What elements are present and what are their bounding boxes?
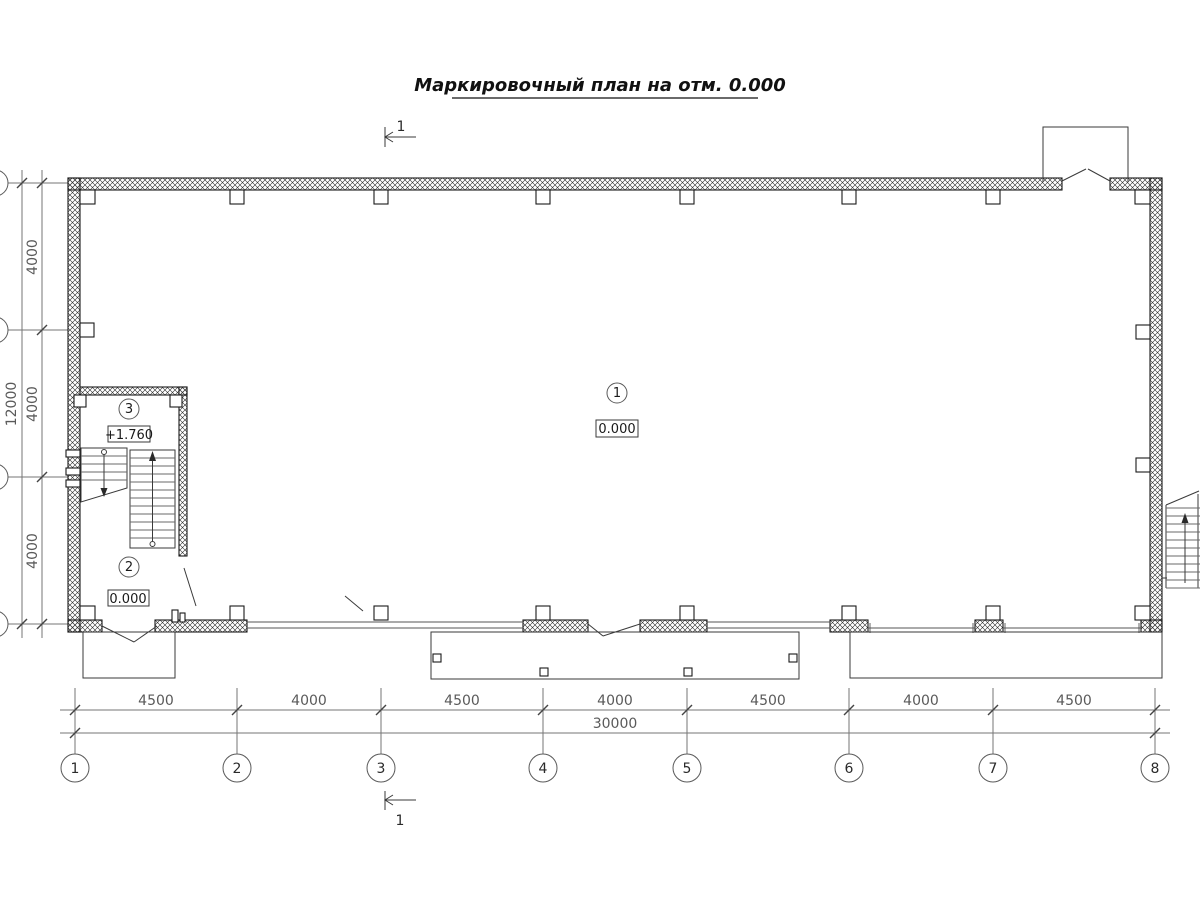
elevation-value: +1.760 — [105, 428, 153, 443]
grid-bubble-4: 4 — [539, 761, 548, 777]
section-mark-bottom: 1 — [385, 791, 416, 829]
page-title: Маркировочный план на отм. 0.000 — [414, 75, 786, 96]
dimension-lines-bottom: 4500 4000 4500 4000 4500 4000 4500 30000 — [60, 688, 1170, 754]
wall-stub — [66, 468, 80, 475]
bottom-wall-pier — [523, 620, 588, 632]
right-wall — [1150, 178, 1162, 632]
elevation-value: 0.000 — [109, 592, 146, 607]
door-leaf-window-band — [345, 596, 363, 611]
porch-left — [83, 632, 175, 678]
room-2-label: 2 0.000 — [108, 557, 149, 607]
wall-stub — [66, 450, 80, 457]
section-mark-top: 1 — [385, 119, 416, 147]
elevation-value: 0.000 — [598, 422, 635, 437]
column-marks — [80, 190, 1150, 620]
wall-stub — [66, 480, 80, 487]
column-mark — [170, 395, 182, 407]
room-number: 1 — [613, 386, 621, 401]
dim-col-5: 4500 — [750, 693, 786, 709]
bottom-wall-pier — [640, 620, 707, 632]
top-wall-left-segment — [68, 178, 1062, 190]
stair-enclosure-right-wall — [179, 387, 187, 556]
section-number-bottom: 1 — [396, 813, 405, 829]
grid-bubble-3: 3 — [377, 761, 386, 777]
entrance-vestibule — [1043, 127, 1128, 182]
dim-col-2: 4000 — [291, 693, 327, 709]
canopy-post — [540, 668, 548, 676]
grid-bubble-1: 1 — [71, 761, 80, 777]
stair-flight-up — [130, 450, 175, 548]
floor-plan-sheet: Маркировочный план на отм. 0.000 1 1 — [0, 0, 1200, 900]
row-bubble-clipped — [0, 170, 8, 196]
grid-bubble-5: 5 — [683, 761, 692, 777]
dim-col-7: 4500 — [1056, 693, 1092, 709]
room-number: 2 — [125, 560, 133, 575]
column-mark — [74, 395, 86, 407]
grid-bubble-7: 7 — [989, 761, 998, 777]
canopy-post — [433, 654, 441, 662]
section-number-top: 1 — [397, 119, 406, 135]
window-band-2 — [707, 622, 830, 628]
dimension-lines-left: 4000 4000 4000 12000 — [4, 170, 47, 638]
grid-bubble-2: 2 — [233, 761, 242, 777]
dim-col-6: 4000 — [903, 693, 939, 709]
row-bubble-clipped — [0, 317, 8, 343]
bottom-wall-pier — [830, 620, 868, 632]
dim-row-1: 4000 — [25, 239, 41, 275]
dim-row-2: 4000 — [25, 386, 41, 422]
bottom-wall-pier — [975, 620, 1003, 632]
dim-row-3: 4000 — [25, 533, 41, 569]
room-1-label: 1 0.000 — [596, 383, 638, 437]
dim-col-1: 4500 — [138, 693, 174, 709]
bottom-wall-pier — [68, 620, 102, 632]
drawing-title: Маркировочный план на отм. 0.000 — [414, 75, 786, 98]
loading-dock-center — [431, 632, 799, 679]
room-3-label: 3 +1.760 — [105, 399, 153, 443]
row-bubble-clipped — [0, 464, 8, 490]
door-stairwell — [172, 568, 196, 622]
up-arrow-icon — [1182, 513, 1189, 523]
grid-bubble-6: 6 — [845, 761, 854, 777]
canopy-post — [684, 668, 692, 676]
stair-enclosure-top-wall — [80, 387, 187, 395]
external-stair — [1162, 491, 1200, 588]
loading-dock-right — [850, 632, 1162, 678]
door-leaf — [1062, 169, 1086, 181]
row-bubble-clipped — [0, 611, 8, 637]
canopy-post — [789, 654, 797, 662]
bottom-wall-pier — [1141, 620, 1162, 632]
door-leaf — [1088, 169, 1110, 181]
bottom-wall-pier — [155, 620, 247, 632]
building-walls — [68, 178, 1162, 633]
window-band-1 — [247, 622, 523, 628]
dim-row-total: 12000 — [4, 382, 20, 427]
door-bottom-center — [588, 624, 640, 636]
grid-bubbles: 1 2 3 4 5 6 7 8 — [61, 754, 1169, 782]
grid-bubble-8: 8 — [1151, 761, 1160, 777]
dim-col-total: 30000 — [593, 716, 638, 732]
dim-col-4: 4000 — [597, 693, 633, 709]
floor-plan-drawing: Маркировочный план на отм. 0.000 1 1 — [0, 0, 1200, 900]
door-bottom-left — [102, 626, 157, 642]
room-number: 3 — [125, 402, 133, 417]
dim-col-3: 4500 — [444, 693, 480, 709]
